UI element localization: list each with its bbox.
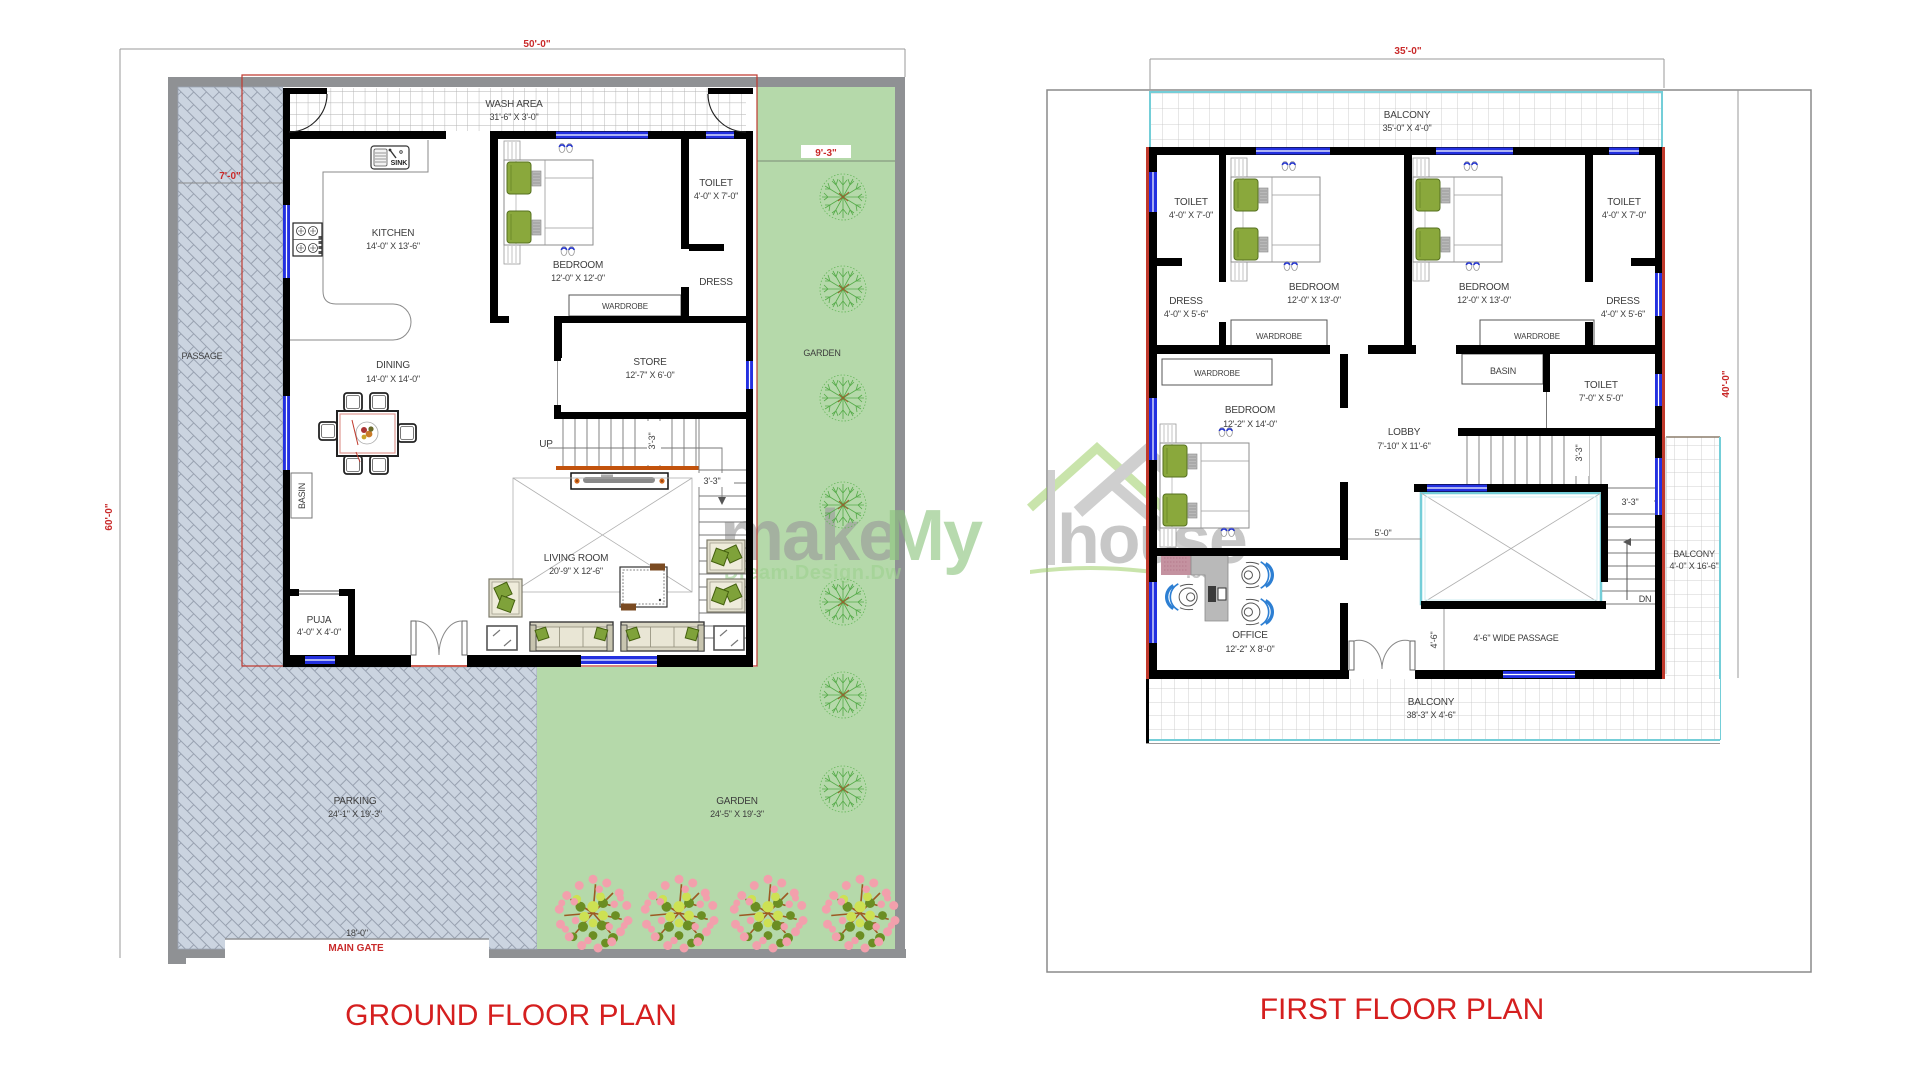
svg-text:KITCHEN: KITCHEN bbox=[372, 228, 415, 239]
svg-text:BASIN: BASIN bbox=[1490, 366, 1516, 376]
svg-text:STORE: STORE bbox=[633, 357, 667, 368]
svg-text:BEDROOM: BEDROOM bbox=[1289, 282, 1339, 293]
svg-text:4'-0" X 7'-0": 4'-0" X 7'-0" bbox=[1602, 210, 1646, 220]
svg-text:TOILET: TOILET bbox=[1607, 197, 1641, 208]
svg-text:WARDROBE: WARDROBE bbox=[1514, 332, 1560, 341]
svg-text:3'-3": 3'-3" bbox=[1622, 497, 1639, 507]
svg-text:GARDEN: GARDEN bbox=[803, 348, 840, 358]
svg-text:PUJA: PUJA bbox=[307, 615, 332, 626]
svg-text:5'-0": 5'-0" bbox=[1375, 528, 1392, 538]
svg-text:WARDROBE: WARDROBE bbox=[602, 302, 648, 311]
svg-text:LIVING ROOM: LIVING ROOM bbox=[544, 553, 608, 564]
svg-text:7'-0": 7'-0" bbox=[219, 171, 241, 182]
svg-text:OFFICE: OFFICE bbox=[1232, 630, 1268, 641]
svg-text:24'-1" X 19'-3": 24'-1" X 19'-3" bbox=[328, 809, 382, 819]
svg-text:MAIN GATE: MAIN GATE bbox=[328, 943, 384, 954]
svg-text:BALCONY: BALCONY bbox=[1408, 697, 1455, 708]
svg-text:4'-0" X 4'-0": 4'-0" X 4'-0" bbox=[297, 627, 341, 637]
svg-text:14'-0" X 14'-0": 14'-0" X 14'-0" bbox=[366, 374, 420, 384]
svg-text:12'-0" X 12'-0": 12'-0" X 12'-0" bbox=[551, 273, 605, 283]
svg-text:7'-0" X 5'-0": 7'-0" X 5'-0" bbox=[1579, 393, 1623, 403]
svg-text:4'-6" WIDE PASSAGE: 4'-6" WIDE PASSAGE bbox=[1473, 633, 1558, 643]
svg-text:7'-10" X 11'-6": 7'-10" X 11'-6" bbox=[1377, 441, 1430, 451]
svg-text:12'-0" X 13'-0": 12'-0" X 13'-0" bbox=[1287, 295, 1341, 305]
svg-text:31'-6" X 3'-0": 31'-6" X 3'-0" bbox=[489, 112, 538, 122]
svg-text:TOILET: TOILET bbox=[1174, 197, 1208, 208]
svg-text:50'-0": 50'-0" bbox=[523, 39, 550, 50]
svg-text:4'-0" X 16'-6": 4'-0" X 16'-6" bbox=[1669, 561, 1718, 571]
svg-text:BALCONY: BALCONY bbox=[1673, 549, 1715, 559]
svg-text:3'-3": 3'-3" bbox=[704, 476, 721, 486]
svg-text:4'-0" X 5'-6": 4'-0" X 5'-6" bbox=[1601, 309, 1645, 319]
svg-text:SINK: SINK bbox=[391, 160, 408, 167]
svg-text:PASSAGE: PASSAGE bbox=[182, 351, 223, 361]
svg-text:4'-0" X 7'-0": 4'-0" X 7'-0" bbox=[1169, 210, 1213, 220]
svg-text:40'-0": 40'-0" bbox=[1721, 370, 1732, 397]
svg-text:WARDROBE: WARDROBE bbox=[1256, 332, 1302, 341]
svg-text:24'-5" X 19'-3": 24'-5" X 19'-3" bbox=[710, 809, 764, 819]
svg-text:BALCONY: BALCONY bbox=[1384, 110, 1431, 121]
svg-text:9'-3": 9'-3" bbox=[815, 148, 837, 159]
svg-text:FIRST FLOOR PLAN: FIRST FLOOR PLAN bbox=[1260, 993, 1545, 1026]
svg-text:3'-3": 3'-3" bbox=[1574, 445, 1584, 462]
svg-text:LOBBY: LOBBY bbox=[1388, 427, 1421, 438]
svg-text:GARDEN: GARDEN bbox=[716, 796, 758, 807]
svg-text:BEDROOM: BEDROOM bbox=[1225, 405, 1275, 416]
svg-text:PARKING: PARKING bbox=[334, 796, 377, 807]
svg-text:DINING: DINING bbox=[376, 360, 410, 371]
svg-text:14'-0" X 13'-6": 14'-0" X 13'-6" bbox=[366, 241, 420, 251]
svg-text:BEDROOM: BEDROOM bbox=[553, 260, 603, 271]
svg-text:WARDROBE: WARDROBE bbox=[1194, 369, 1240, 378]
svg-text:12'-2" X 8'-0": 12'-2" X 8'-0" bbox=[1225, 644, 1274, 654]
svg-text:WASH AREA: WASH AREA bbox=[485, 99, 543, 110]
svg-text:18'-0": 18'-0" bbox=[346, 928, 368, 938]
svg-text:GROUND FLOOR PLAN: GROUND FLOOR PLAN bbox=[345, 999, 677, 1032]
svg-text:20'-9" X 12'-6": 20'-9" X 12'-6" bbox=[549, 566, 603, 576]
svg-text:12'-7" X 6'-0": 12'-7" X 6'-0" bbox=[625, 370, 674, 380]
svg-text:TOILET: TOILET bbox=[699, 178, 733, 189]
svg-text:BEDROOM: BEDROOM bbox=[1459, 282, 1509, 293]
svg-text:4'-0" X 5'-6": 4'-0" X 5'-6" bbox=[1164, 309, 1208, 319]
svg-text:35'-0" X 4'-0": 35'-0" X 4'-0" bbox=[1382, 123, 1431, 133]
svg-text:60'-0": 60'-0" bbox=[104, 503, 115, 530]
svg-text:4'-0" X 7'-0": 4'-0" X 7'-0" bbox=[694, 191, 738, 201]
svg-text:35'-0": 35'-0" bbox=[1394, 46, 1421, 57]
svg-text:12'-0" X 13'-0": 12'-0" X 13'-0" bbox=[1457, 295, 1511, 305]
svg-text:38'-3" X 4'-6": 38'-3" X 4'-6" bbox=[1406, 710, 1455, 720]
svg-text:DRESS: DRESS bbox=[699, 277, 733, 288]
svg-text:BASIN: BASIN bbox=[297, 483, 307, 509]
svg-text:4'-6": 4'-6" bbox=[1429, 632, 1439, 649]
svg-text:DRESS: DRESS bbox=[1169, 296, 1203, 307]
svg-text:TOILET: TOILET bbox=[1584, 380, 1618, 391]
svg-text:DN: DN bbox=[1639, 594, 1652, 604]
svg-text:3'-3": 3'-3" bbox=[647, 433, 657, 450]
svg-text:DRESS: DRESS bbox=[1606, 296, 1640, 307]
